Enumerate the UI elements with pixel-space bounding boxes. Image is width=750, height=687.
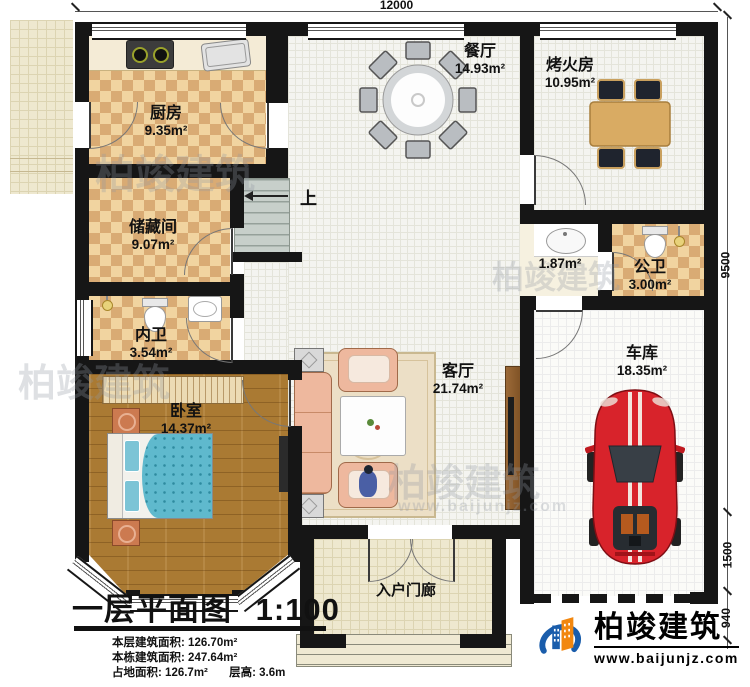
bedroom-tv bbox=[279, 436, 288, 492]
plan-title: 一层平面图 1:100 bbox=[72, 584, 340, 629]
wall-segment bbox=[492, 525, 506, 648]
room-label-bedroom: 卧室 14.37m² bbox=[161, 402, 211, 437]
shower-head-icon bbox=[102, 300, 113, 311]
wall-segment bbox=[230, 274, 244, 318]
wall-segment bbox=[598, 224, 612, 252]
hall-strip-floor bbox=[244, 262, 288, 362]
logo-name: 柏竣建筑 bbox=[594, 613, 739, 643]
room-label-dining: 餐厅 14.93m² bbox=[455, 42, 505, 77]
person-figure bbox=[359, 471, 377, 497]
logo-icon bbox=[532, 610, 586, 668]
stove bbox=[126, 40, 174, 69]
wall-segment bbox=[75, 22, 89, 102]
logo-text-block: 柏竣建筑 www.baijunjz.com bbox=[594, 613, 739, 666]
wall-segment bbox=[520, 296, 536, 310]
room-label-garage: 车库 18.35m² bbox=[617, 344, 667, 379]
dimension-right-mid: 1500 bbox=[720, 542, 734, 569]
floor-plan-canvas: 12000 9500 1500 940 上 bbox=[0, 0, 750, 687]
wall-segment bbox=[520, 310, 534, 604]
dimension-right-main: 9500 bbox=[718, 252, 732, 279]
sink-basin bbox=[193, 301, 217, 317]
wall-segment bbox=[266, 148, 288, 164]
wall-segment bbox=[300, 634, 346, 648]
logo-url: www.baijunjz.com bbox=[594, 646, 739, 666]
room-label-storage: 储藏间 9.07m² bbox=[129, 218, 177, 253]
wall-segment bbox=[520, 210, 718, 224]
side-table-decor bbox=[301, 498, 318, 515]
wall-segment bbox=[460, 634, 506, 648]
faucet-icon bbox=[563, 232, 567, 236]
room-label-fire: 烤火房 10.95m² bbox=[545, 56, 595, 91]
wall-segment bbox=[75, 360, 302, 374]
headboard bbox=[108, 434, 123, 518]
window bbox=[92, 22, 246, 40]
room-label-porch: 入户门廊 bbox=[376, 582, 436, 600]
bed bbox=[108, 434, 212, 518]
person-head bbox=[364, 465, 373, 474]
patio-floor bbox=[10, 20, 73, 194]
coffee-table bbox=[340, 396, 406, 456]
wall-segment bbox=[704, 22, 718, 604]
window bbox=[540, 22, 676, 40]
sink-basin bbox=[205, 43, 247, 68]
wall-segment bbox=[230, 178, 244, 228]
stat-line: 占地面积: 126.7m² 层高: 3.6m bbox=[112, 666, 285, 681]
cushion bbox=[348, 355, 390, 383]
wall-segment bbox=[232, 252, 302, 262]
patio-line bbox=[10, 158, 73, 159]
burner-icon bbox=[153, 47, 169, 63]
lamp-icon bbox=[118, 413, 136, 431]
window bbox=[308, 22, 464, 40]
pillow bbox=[124, 440, 140, 472]
side-table-decor bbox=[301, 352, 318, 369]
garage-door-dashed bbox=[534, 594, 690, 603]
wall-segment bbox=[266, 22, 288, 103]
dimension-top-value: 12000 bbox=[75, 0, 718, 12]
stairs-up-label: 上 bbox=[300, 184, 317, 209]
vanity-sink bbox=[546, 228, 586, 254]
pillow bbox=[124, 480, 140, 512]
room-label-kitchen: 厨房 9.35m² bbox=[145, 104, 188, 139]
wardrobe bbox=[102, 376, 244, 404]
wall-segment bbox=[520, 22, 534, 155]
stairs-direction-arrow bbox=[252, 195, 288, 197]
wall-segment bbox=[582, 296, 718, 310]
room-label-living: 客厅 21.74m² bbox=[433, 362, 483, 397]
shower-hose bbox=[678, 226, 680, 236]
living-tv bbox=[508, 397, 514, 475]
stat-line: 本层建筑面积: 126.70m² bbox=[112, 636, 285, 651]
fire-room-table-set bbox=[585, 78, 677, 170]
armchair bbox=[338, 348, 398, 392]
window bbox=[75, 300, 93, 356]
wall-segment bbox=[75, 164, 288, 178]
plant-decor bbox=[367, 419, 374, 426]
kitchen-sink bbox=[200, 38, 251, 72]
burner-icon bbox=[132, 47, 148, 63]
title-underline bbox=[74, 626, 326, 631]
stat-line: 本栋建筑面积: 247.64m² bbox=[112, 651, 285, 666]
wall-segment bbox=[690, 592, 718, 604]
room-label-bath-private: 内卫 3.54m² bbox=[130, 326, 173, 361]
company-logo: 柏竣建筑 www.baijunjz.com bbox=[532, 610, 739, 668]
flower-decor bbox=[375, 425, 380, 430]
nightstand bbox=[112, 408, 140, 434]
car bbox=[585, 388, 685, 568]
room-label-vanity: 1.87m² bbox=[539, 256, 582, 272]
armchair bbox=[338, 462, 398, 508]
patio-line bbox=[10, 171, 73, 172]
area-statistics: 本层建筑面积: 126.70m² 本栋建筑面积: 247.64m² 占地面积: … bbox=[112, 636, 285, 681]
wall-segment bbox=[75, 282, 244, 296]
shower-head-icon bbox=[674, 236, 685, 247]
nightstand bbox=[112, 520, 140, 546]
room-label-bath-public: 公卫 3.00m² bbox=[629, 258, 672, 293]
arrow-head-icon bbox=[244, 191, 253, 201]
blanket bbox=[142, 434, 212, 518]
lamp-icon bbox=[118, 525, 136, 543]
